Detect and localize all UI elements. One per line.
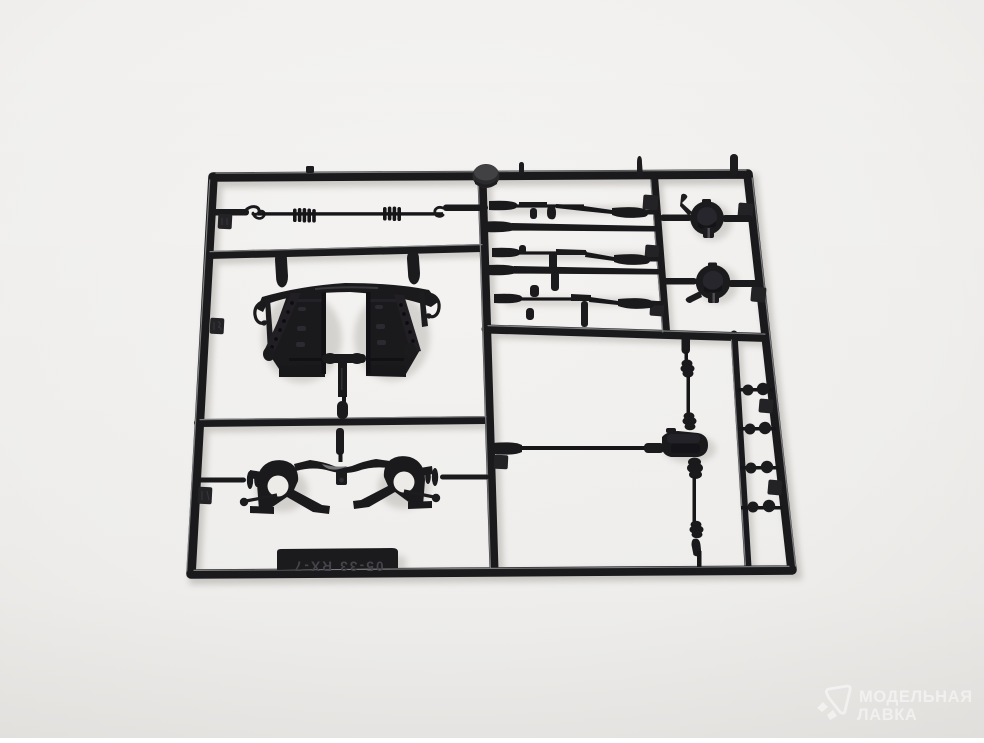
- svg-text:МОДЕЛЬНАЯ: МОДЕЛЬНАЯ: [859, 688, 973, 706]
- svg-text:05-33 RX-7: 05-33 RX-7: [292, 559, 383, 574]
- svg-text:ЛАВКА: ЛАВКА: [857, 706, 917, 724]
